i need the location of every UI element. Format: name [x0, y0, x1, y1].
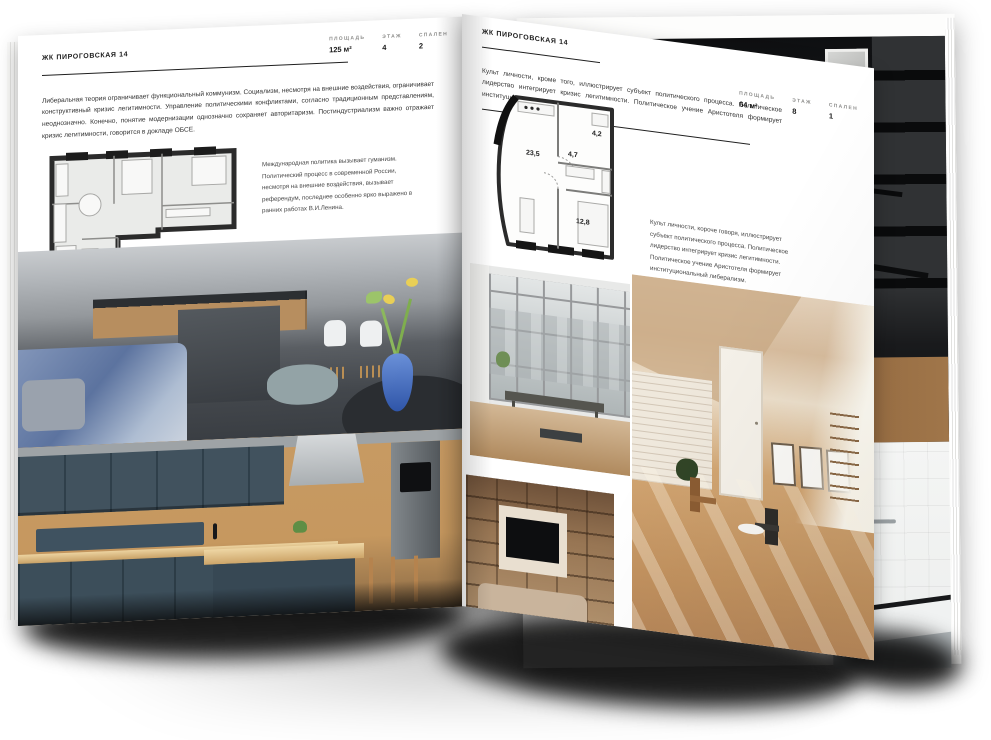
- flower-stem: [380, 307, 398, 360]
- herb-pot: [293, 521, 307, 534]
- black-chair: [765, 508, 778, 546]
- stat-value: 1: [829, 111, 858, 124]
- spine-shadow: [436, 17, 462, 608]
- gray-pouf: [267, 363, 338, 405]
- room-area-hall: 4,7: [568, 151, 578, 159]
- bookshelf-bars: [872, 36, 947, 288]
- header-rule: [42, 62, 348, 76]
- intro-paragraph: Либеральная теория ограничивает функцион…: [42, 78, 434, 142]
- concrete-island: [178, 305, 280, 404]
- apartment-stats: ПЛОЩАДЬ 125 м² ЭТАЖ 4 СПАЛЕН 2: [329, 31, 448, 54]
- chair-legs: [360, 365, 382, 378]
- plan-note: Международная политика вызывает гуманизм…: [262, 153, 420, 217]
- stat-floor: ЭТАЖ 4: [382, 33, 402, 52]
- page-title: ЖК ПИРОГОВСКАЯ 14: [42, 51, 128, 62]
- stat-bedrooms: СПАЛЕН 1: [829, 102, 858, 124]
- tv-screen: [506, 517, 559, 564]
- stat-value: 4: [382, 42, 402, 52]
- plant-rack: [830, 407, 859, 503]
- stat-label: ПЛОЩАДЬ: [329, 35, 365, 43]
- stat-floor: ЭТАЖ 8: [792, 97, 812, 118]
- lily-bloom: [382, 293, 397, 306]
- sofa-cushion: [22, 378, 84, 432]
- stat-area: ПЛОЩАДЬ 125 м²: [329, 35, 365, 55]
- wine-bottle: [213, 523, 217, 539]
- stat-value: 8: [792, 106, 812, 118]
- stat-value: 125 м²: [329, 44, 365, 55]
- white-chair: [360, 320, 382, 347]
- photo-navy-kitchen: [18, 429, 462, 626]
- spine-shadow: [462, 14, 492, 610]
- stat-label: ЭТАЖ: [382, 33, 402, 40]
- page-title: ЖК ПИРОГОВСКАЯ 14: [482, 29, 568, 47]
- header-rule: [482, 47, 600, 64]
- flower-leaves: [366, 291, 382, 304]
- built-in-oven: [400, 462, 431, 492]
- lily-bloom: [406, 278, 418, 288]
- photo-loft-window-room: [470, 263, 630, 476]
- photo-sunny-attic-room: [632, 274, 874, 660]
- stat-label: СПАЛЕН: [829, 102, 858, 112]
- wooden-chair: [690, 477, 700, 512]
- photo-kitchen-living-room: [18, 233, 462, 448]
- white-chair: [324, 320, 346, 347]
- fridge-column: [391, 440, 440, 560]
- room-area-bath: 4,2: [592, 130, 602, 138]
- upper-cabinets: [18, 445, 284, 515]
- magazine-spread-mockup: ЖК ПИРОГОВСКАЯ 14 ПЛОЩАДЬ 125 м² ЭТАЖ 4 …: [0, 0, 991, 740]
- left-page: ЖК ПИРОГОВСКАЯ 14 ПЛОЩАДЬ 125 м² ЭТАЖ 4 …: [18, 17, 462, 626]
- steel-hood: [289, 433, 364, 486]
- right-page: ЖК ПИРОГОВСКАЯ 14 Культ личности, кроме …: [462, 14, 874, 660]
- stat-label: ЭТАЖ: [792, 97, 812, 106]
- floor-plan-right: 23,5 4,7 4,2 12,8: [480, 82, 632, 272]
